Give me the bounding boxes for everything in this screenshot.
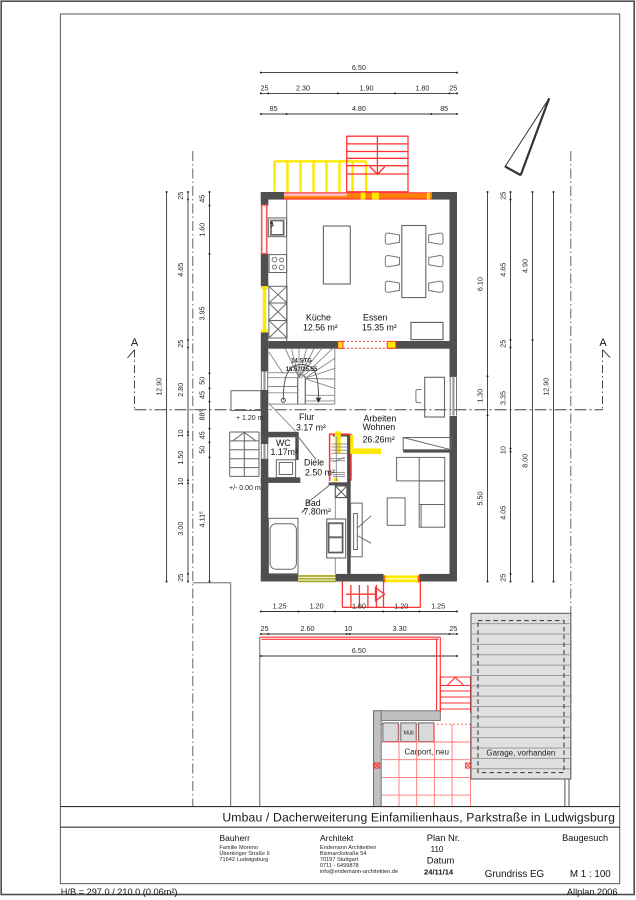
svg-text:Baugesuch: Baugesuch	[562, 833, 608, 843]
svg-text:12.90: 12.90	[154, 378, 163, 396]
svg-text:1.25: 1.25	[273, 602, 287, 611]
svg-text:1.17m²: 1.17m²	[271, 447, 298, 457]
svg-text:4.65: 4.65	[498, 263, 507, 277]
svg-text:25: 25	[498, 574, 507, 582]
svg-text:12.90: 12.90	[541, 378, 550, 396]
svg-text:A: A	[131, 337, 139, 349]
svg-text:50: 50	[197, 377, 206, 385]
svg-text:2.30: 2.30	[296, 84, 310, 93]
svg-text:3.00: 3.00	[176, 522, 185, 536]
svg-text:Umbau / Dacherweiterung Einfam: Umbau / Dacherweiterung Einfamilienhaus,…	[222, 810, 615, 824]
svg-text:Plan Nr.: Plan Nr.	[427, 832, 460, 843]
svg-text:1.25: 1.25	[431, 602, 445, 611]
svg-text:Datum: Datum	[427, 854, 455, 865]
svg-text:A: A	[599, 337, 607, 349]
svg-text:Küche: Küche	[306, 313, 331, 323]
svg-text:1.20: 1.20	[394, 602, 408, 611]
svg-text:4.90: 4.90	[520, 259, 529, 273]
svg-text:5.50: 5.50	[475, 491, 484, 505]
svg-text:25: 25	[261, 624, 269, 633]
svg-text:10: 10	[176, 478, 185, 486]
svg-text:45: 45	[197, 431, 206, 439]
svg-text:71642 Ludwigsburg: 71642 Ludwigsburg	[219, 857, 268, 863]
svg-text:+ 1.20 m: + 1.20 m	[236, 415, 264, 422]
svg-text:10: 10	[344, 624, 352, 633]
svg-text:Allplan 2006: Allplan 2006	[567, 887, 618, 897]
svg-text:Diele: Diele	[304, 457, 324, 467]
svg-text:Essen: Essen	[363, 313, 388, 323]
svg-text:25: 25	[176, 574, 185, 582]
svg-text:2.50 m²: 2.50 m²	[305, 468, 335, 478]
svg-text:3.35: 3.35	[498, 391, 507, 405]
svg-text:50: 50	[197, 446, 206, 454]
svg-text:24/11/14: 24/11/14	[424, 868, 454, 877]
svg-text:3.95: 3.95	[197, 307, 206, 321]
svg-text:25: 25	[498, 340, 507, 348]
svg-text:1.60: 1.60	[197, 223, 206, 237]
svg-text:4.05: 4.05	[498, 506, 507, 520]
svg-text:45: 45	[197, 391, 206, 399]
svg-text:8.00: 8.00	[520, 454, 529, 468]
svg-text:25: 25	[449, 84, 457, 93]
svg-text:3.17 m²: 3.17 m²	[296, 422, 326, 432]
svg-text:Wohnen: Wohnen	[363, 422, 396, 432]
svg-text:2.60: 2.60	[301, 624, 315, 633]
svg-text:14 STG: 14 STG	[291, 359, 312, 365]
svg-text:H/B = 297.0 / 210.0 (0.06m²): H/B = 297.0 / 210.0 (0.06m²)	[61, 887, 178, 897]
svg-text:25: 25	[449, 624, 457, 633]
svg-text:Müll: Müll	[403, 731, 413, 737]
svg-text:25: 25	[176, 192, 185, 200]
svg-text:Garage, vorhanden: Garage, vorhanden	[486, 749, 555, 758]
svg-text:6.50: 6.50	[352, 646, 366, 655]
svg-text:4.80: 4.80	[352, 104, 366, 113]
svg-text:Architekt: Architekt	[320, 833, 354, 843]
svg-text:3.30: 3.30	[393, 624, 407, 633]
svg-text:12.56 m²: 12.56 m²	[303, 323, 338, 333]
svg-text:7.80m²: 7.80m²	[304, 507, 331, 517]
svg-text:1.20: 1.20	[310, 602, 324, 611]
svg-text:1.60: 1.60	[352, 602, 366, 611]
svg-text:110: 110	[431, 845, 444, 854]
svg-text:10: 10	[176, 430, 185, 438]
svg-text:Flur: Flur	[299, 412, 314, 422]
svg-text:15.35 m²: 15.35 m²	[362, 323, 397, 333]
svg-text:1.80: 1.80	[415, 84, 429, 93]
svg-text:25: 25	[176, 340, 185, 348]
svg-text:info@endemann-architekten.de: info@endemann-architekten.de	[320, 869, 398, 875]
svg-text:26.26m²: 26.26m²	[363, 434, 395, 444]
svg-text:+/- 0.00 m: +/- 0.00 m	[229, 485, 261, 492]
svg-text:4.115: 4.115	[197, 511, 206, 527]
svg-text:Carport, neu: Carport, neu	[405, 748, 449, 757]
svg-text:Grundriss EG: Grundriss EG	[485, 869, 544, 880]
svg-text:4.65: 4.65	[176, 263, 185, 277]
svg-text:6.50: 6.50	[352, 63, 366, 72]
svg-text:2.80: 2.80	[176, 383, 185, 397]
svg-text:885: 885	[197, 409, 206, 420]
svg-text:85: 85	[440, 104, 448, 113]
svg-text:85: 85	[270, 104, 278, 113]
svg-text:45: 45	[197, 195, 206, 203]
svg-text:1.90: 1.90	[360, 84, 374, 93]
svg-text:1.50: 1.50	[176, 451, 185, 465]
svg-text:18.57/25.55: 18.57/25.55	[286, 367, 318, 373]
svg-text:M 1 : 100: M 1 : 100	[570, 869, 611, 880]
svg-text:10: 10	[498, 446, 507, 454]
svg-text:25: 25	[261, 84, 269, 93]
svg-text:1.30: 1.30	[475, 389, 484, 403]
svg-text:Bauherr: Bauherr	[219, 833, 250, 843]
svg-text:25: 25	[498, 192, 507, 200]
svg-text:6.10: 6.10	[475, 277, 484, 291]
svg-text:Überkinger Straße 6: Überkinger Straße 6	[219, 850, 269, 857]
